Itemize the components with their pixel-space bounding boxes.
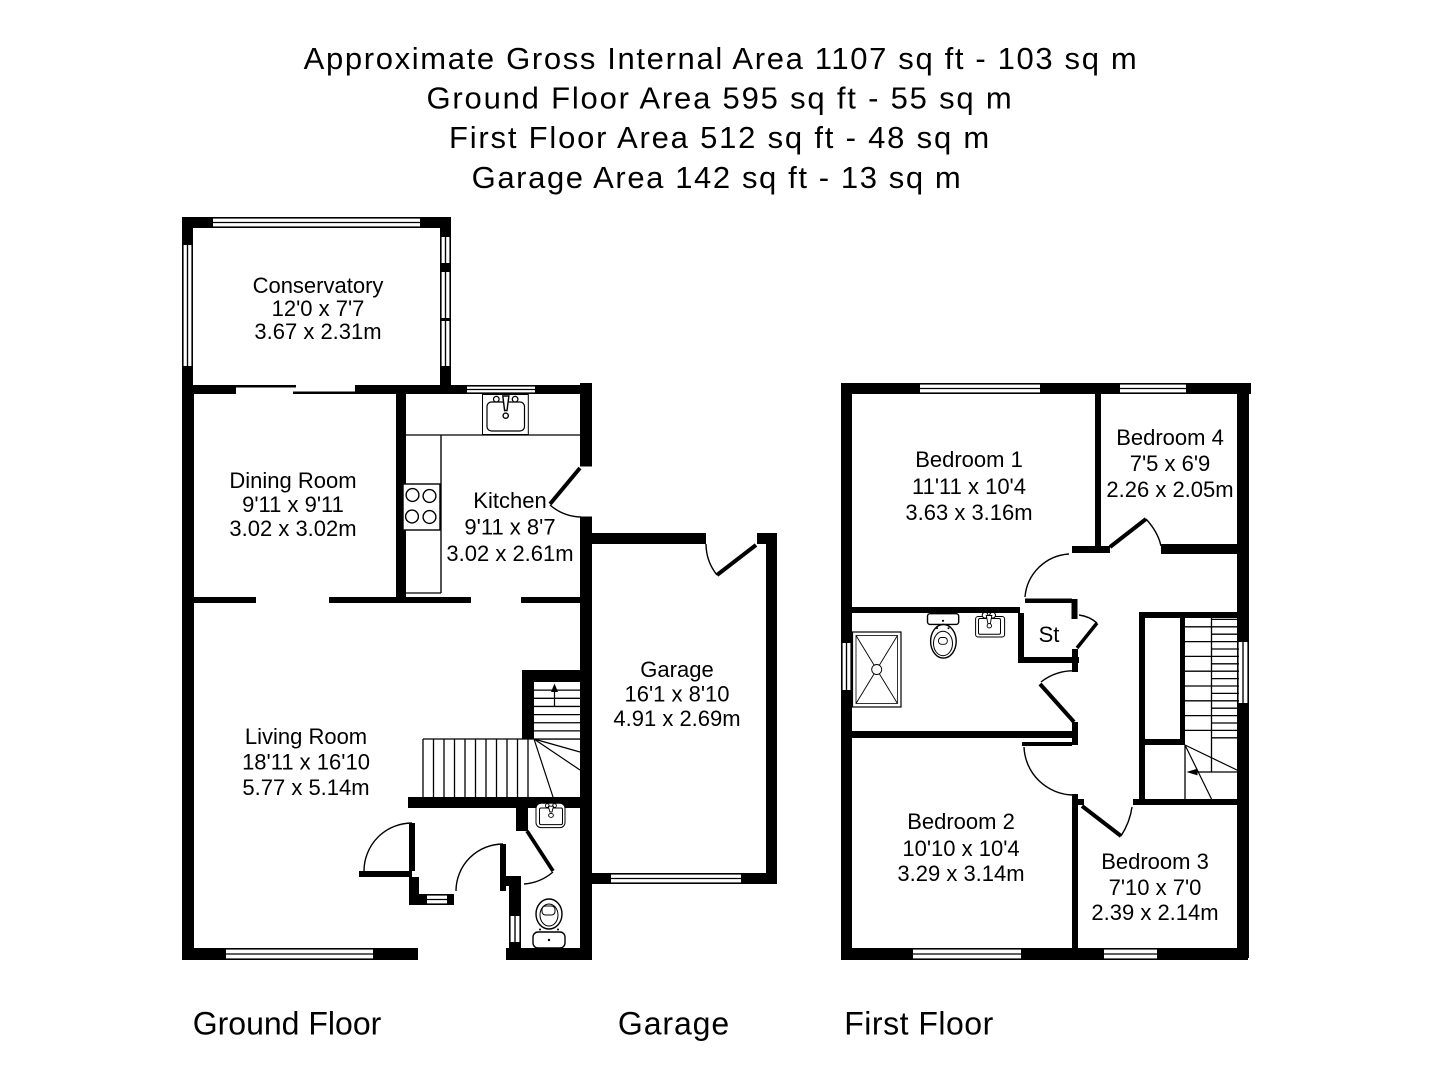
svg-text:3.02 x 3.02m: 3.02 x 3.02m: [229, 516, 356, 541]
svg-text:4.91 x 2.69m: 4.91 x 2.69m: [613, 706, 740, 731]
svg-text:3.29 x 3.14m: 3.29 x 3.14m: [897, 861, 1024, 886]
svg-text:Living Room: Living Room: [245, 724, 367, 749]
svg-text:First Floor Area 512 sq ft - 4: First Floor Area 512 sq ft - 48 sq m: [449, 120, 991, 155]
svg-text:3.02 x 2.61m: 3.02 x 2.61m: [446, 541, 573, 566]
svg-text:3.67 x 2.31m: 3.67 x 2.31m: [254, 319, 381, 344]
svg-text:Ground Floor: Ground Floor: [193, 1006, 382, 1042]
svg-text:16'1 x 8'10: 16'1 x 8'10: [624, 682, 729, 707]
svg-text:7'10 x 7'0: 7'10 x 7'0: [1109, 875, 1202, 900]
svg-text:9'11 x 9'11: 9'11 x 9'11: [242, 492, 344, 517]
svg-text:Ground Floor Area 595 sq ft -: Ground Floor Area 595 sq ft - 55 sq m: [427, 81, 1014, 116]
svg-text:Approximate Gross Internal Are: Approximate Gross Internal Area 1107 sq …: [304, 41, 1139, 76]
svg-text:Bedroom 4: Bedroom 4: [1116, 425, 1224, 450]
svg-text:18'11 x 16'10: 18'11 x 16'10: [242, 750, 370, 775]
svg-text:Garage: Garage: [618, 1006, 730, 1042]
svg-text:Garage Area 142 sq ft - 13 sq: Garage Area 142 sq ft - 13 sq m: [472, 160, 963, 195]
svg-text:3.63 x 3.16m: 3.63 x 3.16m: [905, 500, 1032, 525]
svg-text:Kitchen: Kitchen: [473, 488, 546, 513]
svg-text:11'11 x 10'4: 11'11 x 10'4: [912, 474, 1026, 499]
svg-text:5.77 x 5.14m: 5.77 x 5.14m: [242, 775, 369, 800]
svg-text:St: St: [1039, 622, 1060, 647]
svg-text:Bedroom 1: Bedroom 1: [915, 447, 1023, 472]
svg-text:Conservatory: Conservatory: [253, 273, 384, 298]
svg-text:Dining Room: Dining Room: [229, 468, 356, 493]
svg-text:7'5 x 6'9: 7'5 x 6'9: [1130, 451, 1211, 476]
svg-text:Bedroom 2: Bedroom 2: [907, 809, 1015, 834]
svg-text:First Floor: First Floor: [844, 1006, 994, 1042]
svg-text:Bedroom 3: Bedroom 3: [1101, 849, 1209, 874]
svg-text:9'11 x 8'7: 9'11 x 8'7: [464, 515, 555, 540]
svg-text:10'10 x 10'4: 10'10 x 10'4: [902, 836, 1019, 861]
svg-text:12'0 x 7'7: 12'0 x 7'7: [272, 296, 365, 321]
svg-text:Garage: Garage: [640, 657, 713, 682]
svg-text:2.26 x 2.05m: 2.26 x 2.05m: [1106, 477, 1233, 502]
svg-text:2.39 x 2.14m: 2.39 x 2.14m: [1091, 900, 1218, 925]
